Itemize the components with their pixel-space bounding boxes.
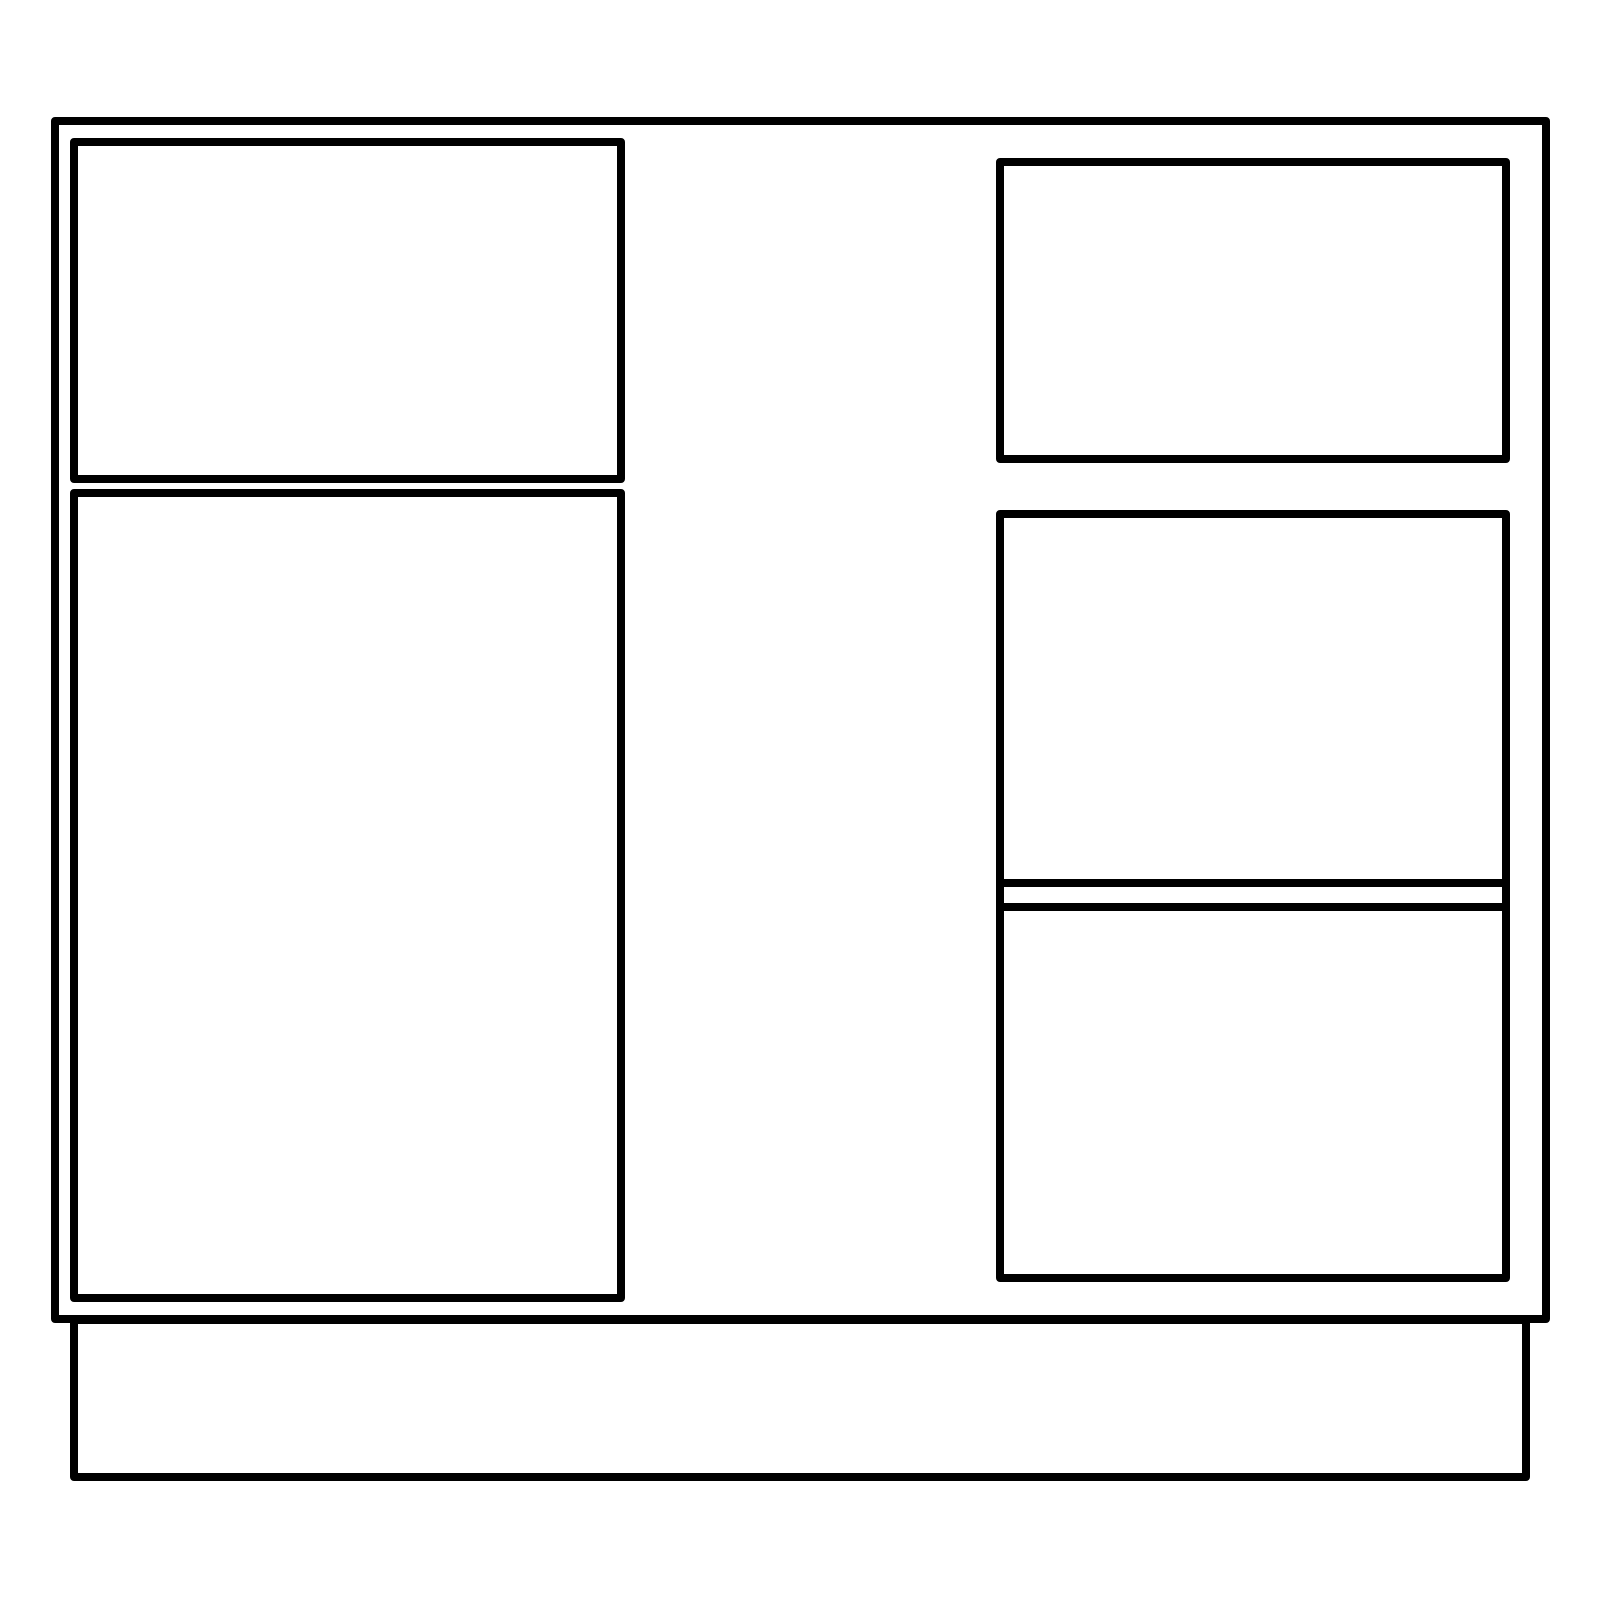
- base-plinth: [74, 1320, 1526, 1477]
- right-top-drawer-front: [1000, 162, 1506, 459]
- left-door-panel: [74, 493, 621, 1298]
- cabinet-elevation-drawing: [0, 0, 1600, 1600]
- right-middle-panel: [1000, 514, 1506, 883]
- left-top-drawer-front: [74, 142, 621, 479]
- cabinet-outline: [55, 121, 1546, 1319]
- right-bottom-panel: [1000, 907, 1506, 1278]
- drawing-svg: [0, 0, 1600, 1600]
